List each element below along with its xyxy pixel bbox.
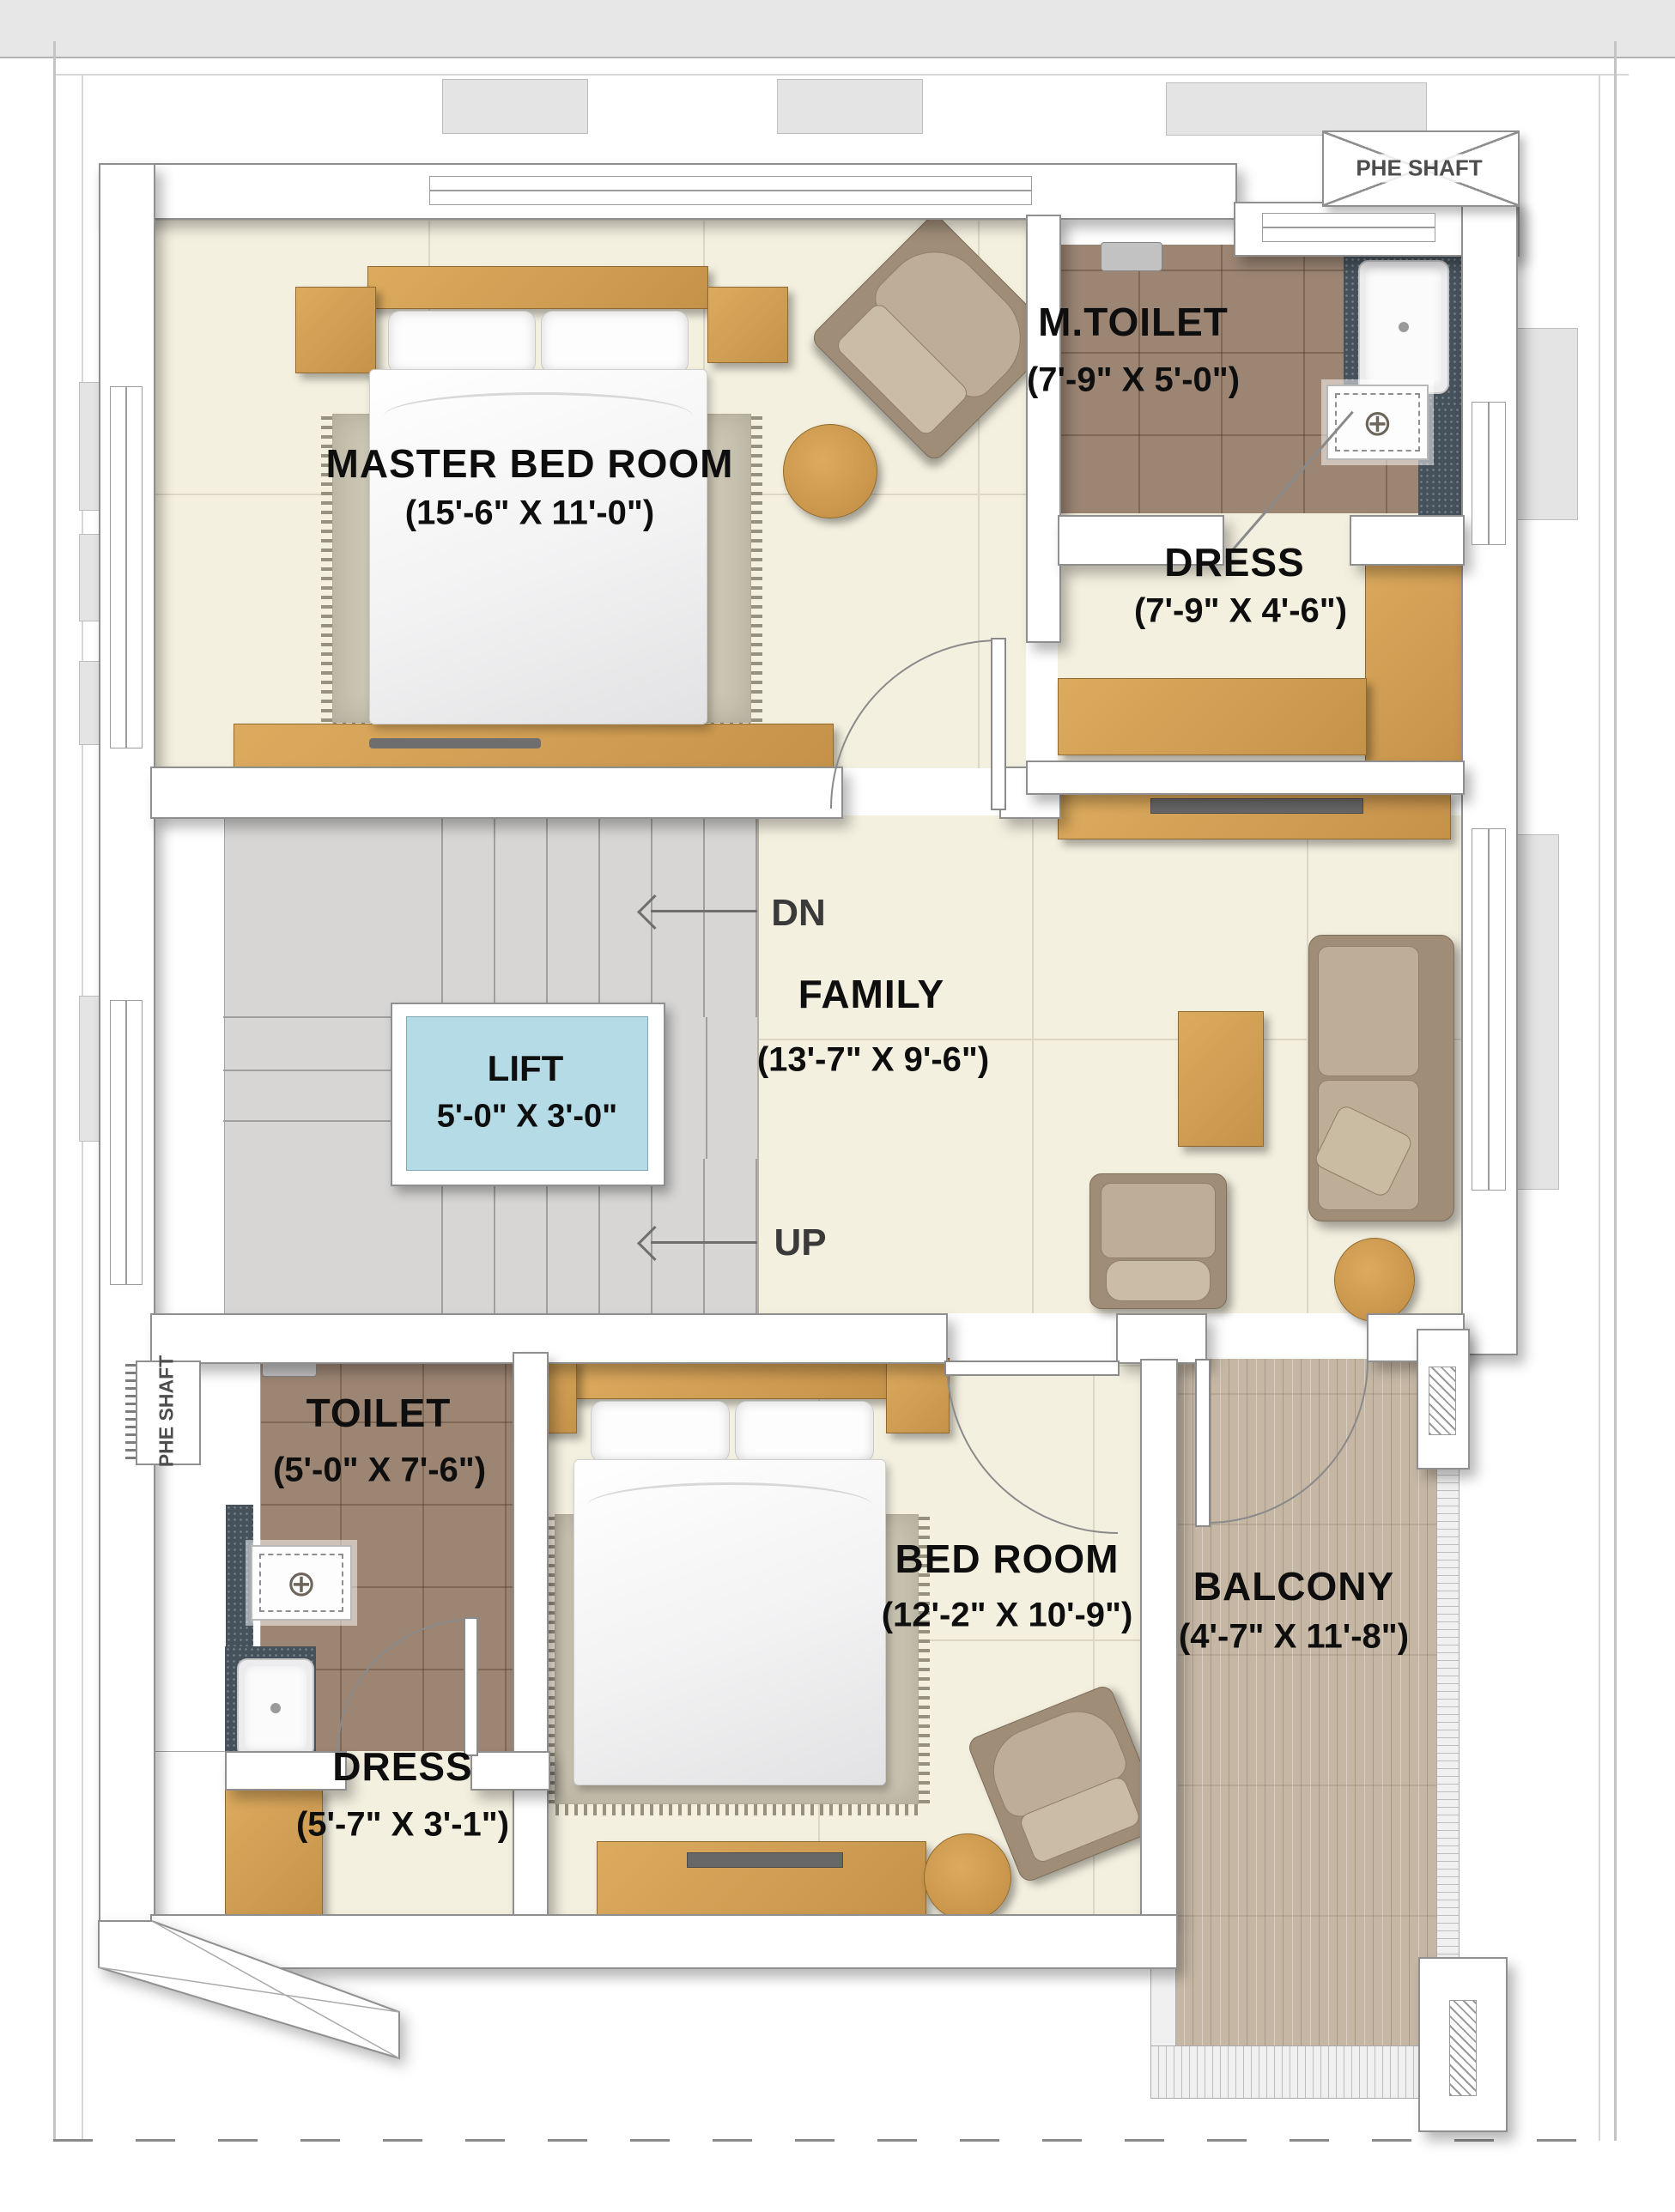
- page-top-margin: [0, 0, 1675, 58]
- lift-label: LIFT: [488, 1048, 564, 1089]
- phe-shaft-left-label: PHE SHAFT: [155, 1355, 179, 1467]
- shower-drain-icon: ⊕: [259, 1554, 343, 1612]
- toilet-sink: [237, 1658, 314, 1758]
- master-bedroom-door-leaf: [991, 638, 1006, 810]
- bedroom-round-stool: [924, 1833, 1011, 1921]
- wall-pier-left-stairs: [152, 815, 225, 1315]
- master-bed-pillow-right: [541, 311, 689, 374]
- stair-dn-label: DN: [771, 892, 826, 935]
- family-label: FAMILY: [798, 971, 944, 1017]
- rug-fringe: [555, 1804, 918, 1815]
- frame-line-right-outer: [1614, 41, 1617, 2141]
- master-bedside-table-right: [707, 287, 788, 363]
- lift-car: [406, 1016, 648, 1171]
- wall-toilet-bedroom: [513, 1352, 549, 1918]
- wall-toilet-bottom-left: [225, 1751, 347, 1791]
- shower-drain-icon: ⊕: [1335, 393, 1420, 451]
- bedroom-side-table-right: [886, 1358, 950, 1433]
- wall-family-bottom-left: [150, 1313, 948, 1364]
- balcony-column-top-vent: [1429, 1367, 1456, 1435]
- toilet-shower-tray: ⊕: [251, 1545, 352, 1621]
- wall-master-family-left: [150, 767, 843, 819]
- m-toilet-sink: [1358, 260, 1449, 394]
- wall-pier-left-dress: [152, 1751, 227, 1916]
- stair-up-label: UP: [774, 1221, 826, 1264]
- family-side-table: [1178, 1011, 1264, 1147]
- stair-landing-line-3: [223, 1120, 391, 1122]
- bedroom-pillow-left: [591, 1401, 730, 1463]
- stair-flight-upper-treads: [391, 815, 757, 1017]
- balcony-door-leaf: [1195, 1359, 1211, 1527]
- family-round-stool: [1334, 1238, 1415, 1322]
- family-sofa: [1308, 935, 1454, 1221]
- frame-line-top-inner: [53, 74, 1629, 76]
- window-master-left: [110, 386, 143, 748]
- wall-toilet-bottom-right: [470, 1751, 550, 1791]
- dress-wardrobe-vertical: [1365, 534, 1463, 762]
- toilet-door-leaf: [464, 1617, 478, 1756]
- master-wardrobe-handle: [369, 738, 541, 748]
- master-round-stool: [783, 424, 877, 518]
- balcony-label: BALCONY: [1193, 1563, 1394, 1609]
- sunshade-projection-top-1: [442, 79, 588, 134]
- master-bed-headboard: [367, 266, 708, 309]
- window-mtoilet-top: [1262, 213, 1435, 242]
- master-bedside-table-left: [295, 287, 376, 373]
- wall-mtoilet-bottom-right: [1350, 515, 1465, 566]
- balcony-column-bottom-vent: [1449, 2000, 1477, 2096]
- toilet-dims: (5'-0" X 7'-6"): [273, 1451, 486, 1490]
- sunshade-projection-right-1: [1514, 328, 1578, 520]
- bedroom-headboard: [570, 1358, 889, 1399]
- m-toilet-label: M.TOILET: [1038, 299, 1229, 345]
- sink-drain: [270, 1703, 281, 1713]
- wall-bedroom-balcony: [1140, 1359, 1178, 1918]
- window-master-top: [429, 176, 1032, 205]
- family-dims: (13'-7" X 9'-6"): [757, 1041, 989, 1080]
- lift-dims: 5'-0" X 3'-0": [437, 1099, 617, 1136]
- bedroom-tv: [687, 1852, 843, 1868]
- bedroom-pillow-right: [735, 1401, 874, 1463]
- toilet-label: TOILET: [306, 1390, 452, 1436]
- site-boundary-dashed-line: [53, 2139, 1617, 2142]
- frame-line-right-inner: [1599, 74, 1600, 2141]
- master-bed-pillow-left: [388, 311, 536, 374]
- master-bedroom-label: MASTER BED ROOM: [326, 440, 734, 487]
- bedroom-dims: (12'-2" X 10'-9"): [882, 1597, 1133, 1635]
- sunshade-projection-top-2: [777, 79, 923, 134]
- wall-master-mtoilet-vertical: [1026, 215, 1061, 643]
- dress-top-label: DRESS: [1164, 539, 1304, 585]
- window-stairs-left: [110, 1000, 143, 1285]
- family-armchair-back: [1101, 1183, 1216, 1258]
- stair-landing-line-1: [223, 1016, 391, 1018]
- frame-line-left-outer: [53, 41, 56, 2141]
- bedroom-duvet: [574, 1459, 886, 1785]
- dress-bottom-label: DRESS: [332, 1743, 472, 1790]
- stair-landing-line-2: [223, 1070, 391, 1071]
- family-armchair: [1089, 1173, 1227, 1309]
- wall-dress-family: [1026, 761, 1465, 795]
- dress-bottom-dims: (5'-7" X 3'-1"): [296, 1806, 509, 1845]
- wall-family-bottom-mid: [1116, 1313, 1207, 1364]
- master-bed-duvet: [369, 369, 707, 724]
- window-family-right: [1472, 828, 1506, 1191]
- phe-shaft-left-vent: [125, 1363, 136, 1459]
- dress-wardrobe-horizontal: [1058, 678, 1367, 755]
- bedroom-label: BED ROOM: [895, 1536, 1120, 1582]
- m-toilet-faucet-icon: [1101, 242, 1162, 271]
- m-toilet-dims: (7'-9" X 5'-0"): [1027, 361, 1240, 400]
- phe-shaft-top-label: PHE SHAFT: [1352, 155, 1485, 183]
- bedroom-door-leaf: [944, 1361, 1120, 1376]
- window-mtoilet-right: [1472, 402, 1506, 545]
- sink-drain: [1399, 322, 1409, 332]
- wall-chamfer-corner: [97, 1919, 406, 2065]
- family-armchair-seat: [1106, 1260, 1211, 1301]
- balcony-railing-bottom: [1150, 2045, 1460, 2099]
- stair-mid-landing-line: [706, 1017, 707, 1159]
- sunshade-projection-top-3: [1166, 82, 1427, 136]
- master-bedroom-dims: (15'-6" X 11'-0"): [405, 494, 654, 533]
- sofa-cushion-top: [1318, 946, 1419, 1076]
- dress-top-dims: (7'-9" X 4'-6"): [1134, 592, 1347, 631]
- balcony-dims: (4'-7" X 11'-8"): [1179, 1618, 1409, 1657]
- family-tv: [1150, 798, 1363, 814]
- floor-plan-page: ⊕ ⊕ PHE SHAFT PHE SHAFT: [0, 0, 1675, 2212]
